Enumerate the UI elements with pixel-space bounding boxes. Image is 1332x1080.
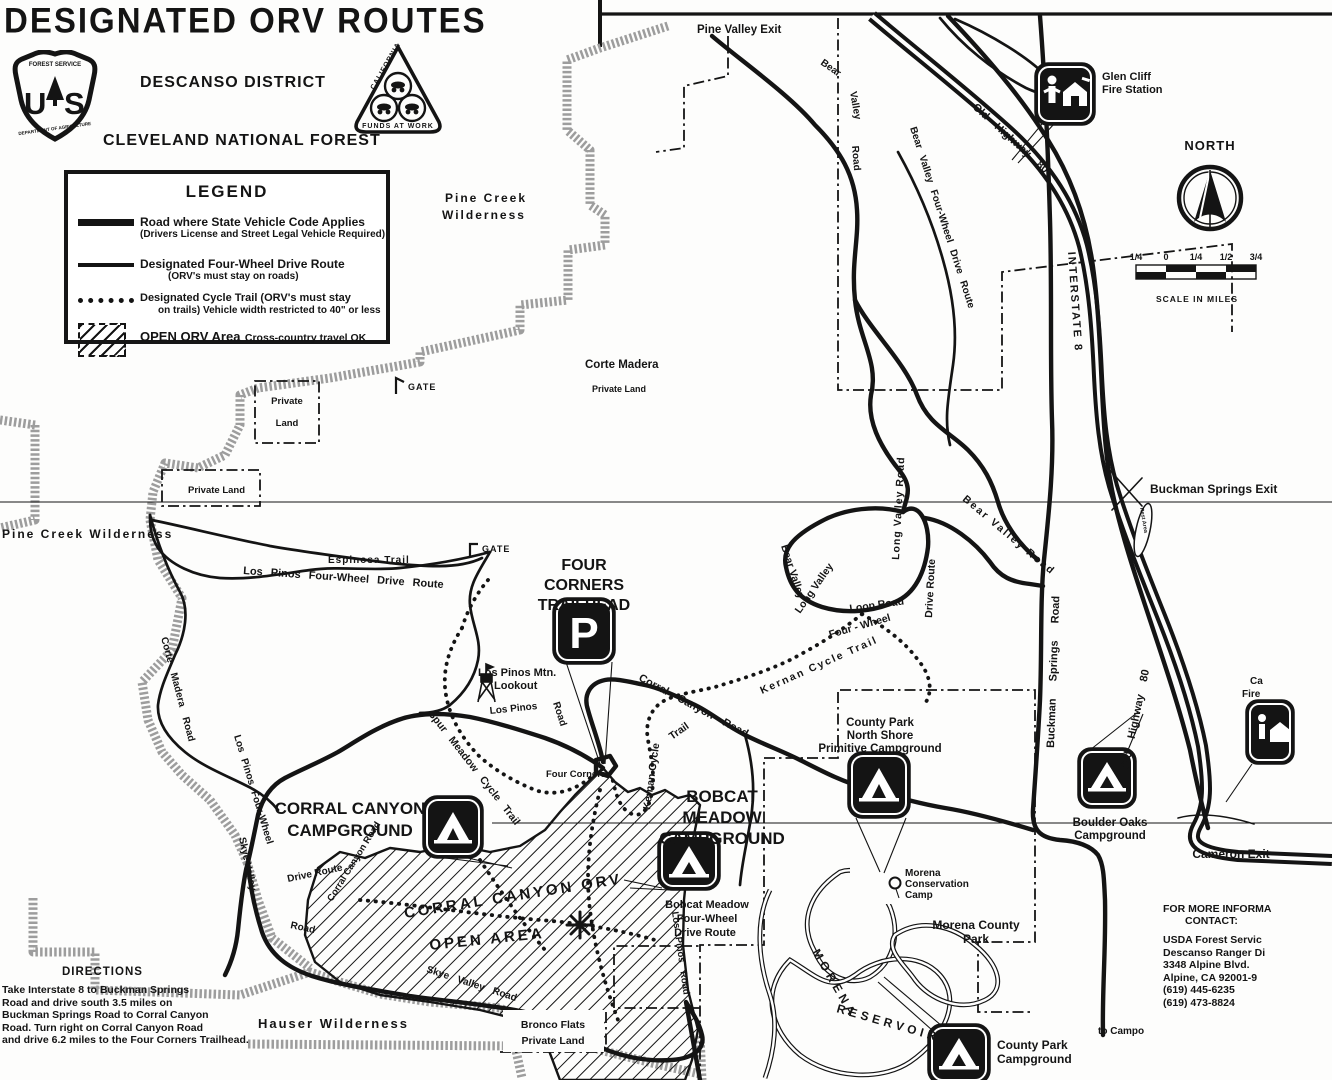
espinosa-trail-label: Espinosa Trail — [328, 555, 410, 566]
svg-text:U: U — [24, 86, 46, 121]
legend-4wd-sub: (ORV's must stay on roads) — [168, 271, 345, 282]
scale-bar: 1/4 0 1/4 1/2 3/4 SCALE IN MILES — [1130, 252, 1263, 304]
fire-station-icon-glen-cliff — [1035, 63, 1095, 125]
legend-road-sub: (Drivers License and Street Legal Vehicl… — [140, 229, 385, 240]
gate-label-west: GATE — [408, 382, 436, 392]
cameron-exit-label: Cameron Exit — [1192, 847, 1269, 861]
district-label: DESCANSO DISTRICT — [140, 74, 326, 92]
map-graphic: Rest Area P — [0, 0, 1332, 1080]
legend-item-cycle: Designated Cycle Trail (ORV's must stay … — [78, 292, 381, 316]
svg-text:S: S — [64, 86, 85, 121]
cameron-fire-label-1: Ca — [1250, 676, 1263, 687]
legend-road-label: Road where State Vehicle Code Applies — [140, 216, 385, 229]
bear-valley-4wd-label-top: Bear Valley Four-Wheel Drive Route — [907, 126, 976, 311]
county-park-campground-label-1: County Park — [997, 1038, 1068, 1052]
to-campo-label: to Campo — [1098, 1026, 1144, 1037]
espinosa-trail-road — [152, 520, 482, 566]
private-land-small-label: Private Land — [188, 485, 245, 496]
conservation-camp-label-1: Morena — [905, 868, 941, 879]
contact-line: (619) 473-8824 — [1163, 997, 1332, 1010]
north-shore-label-3: Primitive Campground — [818, 743, 941, 755]
north-compass: NORTH — [1179, 138, 1241, 230]
morena-county-park-label-1: Morena County — [932, 918, 1020, 932]
legend-open-sub: Cross-country travel OK — [245, 332, 366, 344]
bear-valley-loop-label-3: Drive Route — [923, 559, 938, 619]
los-pinos-road-lookout-section — [420, 552, 490, 713]
scale-caption: SCALE IN MILES — [1156, 294, 1238, 304]
directions-line: Road. Turn right on Corral Canyon Road — [2, 1022, 252, 1035]
bobcat-route-label-1: Bobcat Meadow — [665, 899, 749, 911]
glen-cliff-label-2: Fire Station — [1102, 84, 1163, 96]
directions-block: DIRECTIONS Take Interstate 8 to Buckman … — [2, 966, 252, 1047]
bear-valley-road-label-2: Valley — [847, 91, 863, 121]
contact-line: Descanso Ranger Di — [1163, 947, 1332, 960]
usfs-arc-bottom: DEPARTMENT OF AGRICULTURE — [18, 121, 91, 136]
svg-text:P: P — [569, 609, 598, 658]
conservation-camp-label-3: Camp — [905, 890, 933, 901]
svg-text:3/4: 3/4 — [1250, 252, 1263, 262]
open-area-symbol — [78, 323, 140, 357]
spur-meadow-cycle-trail-north — [462, 580, 488, 628]
bear-valley-road-label-1: Bear — [818, 57, 843, 79]
bobcat-label-2: MEADOW — [682, 808, 762, 827]
legend-item-open-area: OPEN ORV Area Cross-country travel OK — [78, 320, 366, 357]
legend-4wd-label: Designated Four-Wheel Drive Route — [140, 258, 345, 271]
legend-box: LEGEND Road where State Vehicle Code App… — [64, 170, 390, 344]
bear-valley-road-label-3: Road — [849, 145, 862, 171]
svg-text:1/2: 1/2 — [1220, 252, 1233, 262]
north-shore-label-1: County Park — [846, 717, 914, 729]
legend-item-4wd: Designated Four-Wheel Drive Route (ORV's… — [78, 258, 345, 282]
reservoir-label-2: RESERVOIR — [835, 1001, 941, 1044]
directions-line: Take Interstate 8 to Buckman Springs — [2, 984, 252, 997]
corte-madera-label: Corte Madera — [585, 359, 659, 371]
four-corners-trailhead-label-1: FOUR — [561, 557, 607, 574]
boulder-oaks-label-1: Boulder Oaks — [1073, 817, 1148, 829]
private-land-box-label-1: Private — [271, 396, 303, 407]
cameron-fire-label-2: Fire — [1242, 689, 1261, 700]
directions-line: Road and drive south 3.5 miles on — [2, 997, 252, 1010]
legend-open-label: OPEN ORV Area — [140, 329, 240, 344]
buckman-springs-exit-label: Buckman Springs Exit — [1150, 482, 1277, 496]
los-pinos-road-label-1: Los Pinos — [489, 701, 538, 717]
buckman-springs-road-label: Buckman Springs Road — [1045, 596, 1062, 748]
four-corners-trailhead-label-2: CORNERS — [544, 577, 624, 594]
bronco-flats-label-2: Private Land — [521, 1035, 584, 1047]
kernan-cycle-vert-label-2: Trail — [667, 720, 692, 742]
four-corners-point-label: Four Corners — [546, 769, 606, 780]
old-highway-80-road — [948, 16, 1208, 828]
legend-title: LEGEND — [68, 182, 386, 202]
orv-routes-map-page: Rest Area P — [0, 0, 1332, 1080]
pine-creek-wilderness-left-label: Pine Creek Wilderness — [2, 527, 173, 541]
skye-valley-left-label-1: Skye Valley — [236, 836, 258, 892]
road-line-symbol — [78, 219, 140, 226]
glen-cliff-label-1: Glen Cliff — [1102, 71, 1151, 83]
old-highway-80-label-right: Old Highway 80 — [1119, 668, 1152, 770]
svg-text:0: 0 — [1163, 252, 1168, 262]
directions-title: DIRECTIONS — [62, 966, 252, 978]
contact-line: USDA Forest Servic — [1163, 934, 1332, 947]
forest-label: CLEVELAND NATIONAL FOREST — [103, 132, 381, 150]
morena-county-park-label-2: Park — [963, 932, 989, 946]
corral-canyon-campground-label-1: CORRAL CANYON — [275, 799, 426, 818]
private-land-parcel — [255, 381, 319, 443]
contact-line: (619) 445-6235 — [1163, 984, 1332, 997]
gate-icon-west — [396, 378, 404, 394]
fire-station-icon-cameron-partial — [1246, 700, 1294, 764]
svg-text:1/4: 1/4 — [1130, 252, 1143, 262]
lookout-label-1: Los Pinos Mtn. — [478, 667, 556, 679]
fwd-line-symbol — [78, 261, 140, 267]
bear-valley-loop-label-1: Bear Valley — [778, 543, 807, 600]
usfs-shield-logo: FOREST SERVICE U S DEPARTMENT OF AGRICUL… — [12, 50, 98, 142]
ohv-bottom-label: FUNDS AT WORK — [362, 123, 434, 130]
los-pinos-4wd-route-north — [150, 515, 490, 578]
conservation-camp-label-2: Conservation — [905, 879, 969, 890]
los-pinos-road-label-2: Road — [550, 701, 568, 728]
bobcat-route-label-2: Four-Wheel — [677, 913, 738, 925]
boulder-oaks-label-2: Campground — [1074, 830, 1146, 842]
legend-cycle-label: Designated Cycle Trail (ORV's must stay — [140, 292, 381, 305]
rest-area-marker: Rest Area — [1131, 502, 1156, 558]
bear-valley-road — [712, 36, 908, 512]
contact-heading: FOR MORE INFORMA — [1163, 903, 1332, 915]
contact-subheading: CONTACT: — [1185, 915, 1332, 927]
campground-icon-north-shore — [848, 752, 910, 818]
bronco-flats-label-1: Bronco Flats — [521, 1019, 585, 1031]
bear-valley-road-mid-label: Bear Valley Road — [960, 493, 1058, 578]
lookout-label-2: Lookout — [494, 680, 538, 692]
bobcat-label-1: BOBCAT — [686, 787, 758, 806]
contact-line: 3348 Alpine Blvd. — [1163, 959, 1332, 972]
contact-line: Alpine, CA 92001-9 — [1163, 972, 1332, 985]
pine-creek-wilderness-label-2: Wilderness — [442, 208, 526, 222]
usfs-tree — [46, 76, 64, 106]
legend-cycle-sub: on trails) Vehicle width restricted to 4… — [158, 305, 381, 316]
four-corners-trailhead-label-3: TRAILHEAD — [538, 597, 630, 614]
private-land-box-label-2: Land — [276, 418, 299, 429]
interstate-8-label: INTERSTATE 8 — [1065, 251, 1084, 352]
north-shore-label-2: North Shore — [847, 730, 913, 742]
asterisk-marker — [567, 912, 593, 938]
hauser-wilderness-label: Hauser Wilderness — [258, 1016, 409, 1031]
legend-item-road: Road where State Vehicle Code Applies (D… — [78, 216, 385, 240]
north-label: NORTH — [1184, 138, 1235, 153]
long-valley-loop-label-2: Loop Road — [849, 595, 905, 615]
directions-line: Buckman Springs Road to Corral Canyon — [2, 1009, 252, 1022]
campground-icon-corral-canyon — [423, 796, 483, 858]
cycle-trail-symbol — [78, 295, 140, 303]
pine-creek-wilderness-label-1: Pine Creek — [445, 191, 527, 205]
bear-valley-4wd-route — [898, 152, 955, 445]
directions-line: and drive 6.2 miles to the Four Corners … — [2, 1034, 252, 1047]
page-title: DESIGNATED ORV ROUTES — [4, 0, 487, 41]
corral-canyon-campground-label-2: CAMPGROUND — [287, 821, 413, 840]
california-ohv-logo: CALIFORNIA FUNDS AT WORK — [350, 42, 446, 140]
county-park-campground-label-2: Campground — [997, 1052, 1072, 1066]
svg-text:1/4: 1/4 — [1190, 252, 1203, 262]
bobcat-label-3: CAMPGROUND — [659, 829, 785, 848]
corte-madera-private-label: Private Land — [592, 384, 646, 394]
contact-block: FOR MORE INFORMA CONTACT: USDA Forest Se… — [1163, 903, 1332, 1009]
pine-valley-exit-label: Pine Valley Exit — [697, 24, 782, 36]
usfs-arc-top: FOREST SERVICE — [29, 62, 81, 68]
gate-label-east: GATE — [482, 544, 510, 554]
